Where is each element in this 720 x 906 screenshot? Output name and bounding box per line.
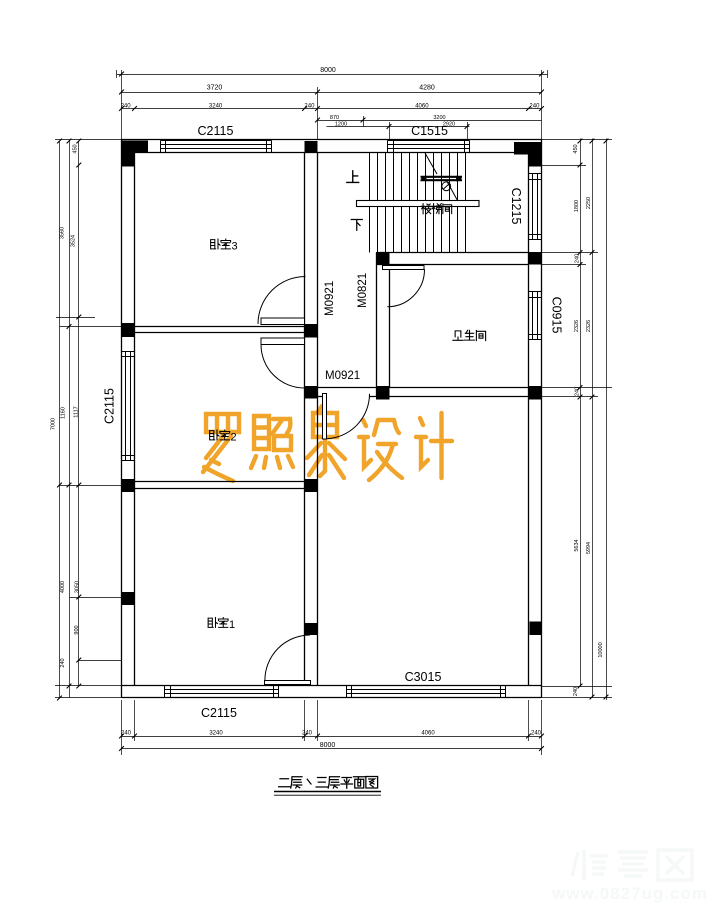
svg-text:C2115: C2115 [198,124,234,138]
svg-text:240: 240 [531,731,542,737]
svg-text:1117: 1117 [74,406,80,417]
svg-text:240: 240 [60,658,66,667]
svg-text:3200: 3200 [433,115,445,121]
svg-text:8000: 8000 [320,742,336,749]
svg-text:5634: 5634 [574,539,580,551]
svg-text:M0821: M0821 [357,273,369,308]
svg-text:3720: 3720 [207,85,223,92]
svg-text:240: 240 [573,687,579,696]
svg-text:8000: 8000 [320,67,336,74]
svg-text:3524: 3524 [71,235,77,247]
svg-text:M0921: M0921 [324,281,336,316]
svg-text:C1515: C1515 [411,124,448,138]
svg-text:240: 240 [304,104,315,110]
svg-text:450: 450 [573,144,579,153]
svg-text:240: 240 [529,104,540,110]
svg-text:1800: 1800 [574,200,580,212]
svg-text:240: 240 [121,731,132,737]
svg-text:4060: 4060 [415,104,429,110]
svg-text:3560: 3560 [60,227,66,239]
svg-text:2326: 2326 [586,320,592,332]
svg-text:3240: 3240 [209,104,223,110]
svg-text:870: 870 [330,115,339,121]
svg-text:M0921: M0921 [325,370,360,382]
svg-text:2: 2 [231,432,237,444]
svg-text:1200: 1200 [335,122,347,128]
svg-text:240: 240 [302,731,313,737]
svg-text:4060: 4060 [421,731,435,737]
svg-text:900: 900 [74,625,80,634]
svg-text:2326: 2326 [574,320,580,332]
svg-text:7000: 7000 [51,418,57,430]
svg-text:C0915: C0915 [550,297,564,334]
svg-text:2250: 2250 [586,197,592,209]
svg-text:C1215: C1215 [509,188,523,225]
svg-text:450: 450 [73,144,79,153]
svg-text:240: 240 [575,387,581,396]
svg-text:5994: 5994 [586,542,592,554]
svg-text:3050: 3050 [75,581,81,593]
svg-text:240: 240 [121,104,132,110]
svg-text:4280: 4280 [419,85,435,92]
svg-text:3: 3 [232,241,238,253]
svg-text:1: 1 [229,619,235,631]
svg-text:1160: 1160 [61,407,67,419]
svg-text:www.0827ug.com: www.0827ug.com [551,884,708,903]
svg-text:C2115: C2115 [201,706,237,720]
svg-text:C2115: C2115 [103,388,117,424]
svg-text:3240: 3240 [209,731,223,737]
svg-text:240: 240 [575,254,581,263]
svg-text:4000: 4000 [60,581,66,593]
svg-text:C3015: C3015 [405,670,442,684]
svg-text:10000: 10000 [598,642,604,657]
